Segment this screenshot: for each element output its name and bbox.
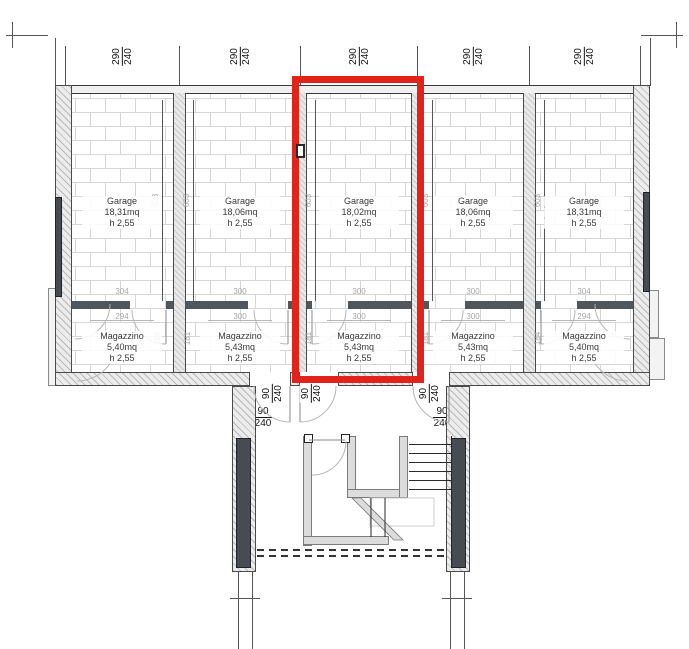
dim-value: 90	[261, 386, 272, 399]
partition-4	[523, 93, 536, 372]
corner-marker-left-v	[12, 22, 13, 48]
dim-value: 90	[418, 386, 429, 399]
unit-region-1[interactable]	[72, 93, 173, 372]
break-tick	[442, 598, 472, 599]
door-post	[304, 434, 313, 443]
stair-wall-bottom	[303, 536, 389, 545]
dim-value: 290	[462, 47, 473, 66]
dim-value: 240	[272, 384, 284, 403]
partition-1	[173, 93, 186, 372]
dim-value: 240	[584, 47, 596, 66]
insulation-left	[55, 197, 62, 297]
dim-value: 90	[300, 386, 311, 399]
dim-value: 290	[573, 47, 584, 66]
wall-step-right-2	[649, 338, 665, 380]
dim-value: 240	[240, 47, 252, 66]
stair-treads-upper	[409, 436, 452, 490]
wall-bottom-seg	[55, 372, 250, 386]
dim-value: 240	[473, 47, 485, 66]
dim-value: 240	[254, 417, 273, 429]
dim-bay-width-2: 290240	[218, 34, 262, 78]
ext-line	[529, 46, 530, 86]
ext-line	[179, 46, 180, 86]
dim-bay-width-1: 290240	[100, 34, 144, 78]
wall-line-below	[252, 572, 253, 649]
wall-line-below	[238, 572, 239, 649]
wall-line-below	[464, 572, 465, 649]
dim-bay-width-5: 290240	[562, 34, 606, 78]
section-line	[233, 555, 470, 557]
dim-value: 240	[429, 384, 441, 403]
corner-marker-right-v	[676, 22, 677, 48]
dim-value: 290	[348, 47, 359, 66]
ext-line	[640, 46, 641, 86]
ext-line	[65, 46, 66, 86]
break-tick	[230, 598, 260, 599]
wall-bottom-seg	[449, 372, 650, 386]
dim-value: 240	[122, 47, 134, 66]
wall-step-right	[649, 290, 659, 338]
pilaster-left	[236, 438, 251, 568]
floor-plan-canvas: 290240 290240 290240 290240 290240 603 6…	[0, 0, 689, 649]
wall-fixture-symbol	[296, 144, 305, 158]
stair-wall-left	[303, 436, 312, 546]
unit-region-5[interactable]	[536, 93, 633, 372]
dim-value: 290	[111, 47, 122, 66]
section-line	[233, 549, 470, 551]
highlighted-unit-outline	[292, 76, 424, 383]
dim-bay-width-3: 290240	[337, 34, 381, 78]
insulation-right	[643, 192, 650, 292]
dim-bay-width-4: 290240	[451, 34, 495, 78]
dim-value: 290	[229, 47, 240, 66]
dim-door-rotated-1: 90240	[252, 373, 292, 413]
dim-value: 240	[311, 384, 323, 403]
dim-value: 240	[359, 47, 371, 66]
ext-line	[650, 38, 651, 86]
pilaster-right	[451, 438, 466, 568]
unit-region-4[interactable]	[424, 93, 523, 372]
door-post	[341, 434, 350, 443]
stair-wall-u-right	[399, 436, 408, 498]
unit-region-2[interactable]	[186, 93, 294, 372]
ext-line	[55, 38, 56, 86]
wall-line-below	[450, 572, 451, 649]
